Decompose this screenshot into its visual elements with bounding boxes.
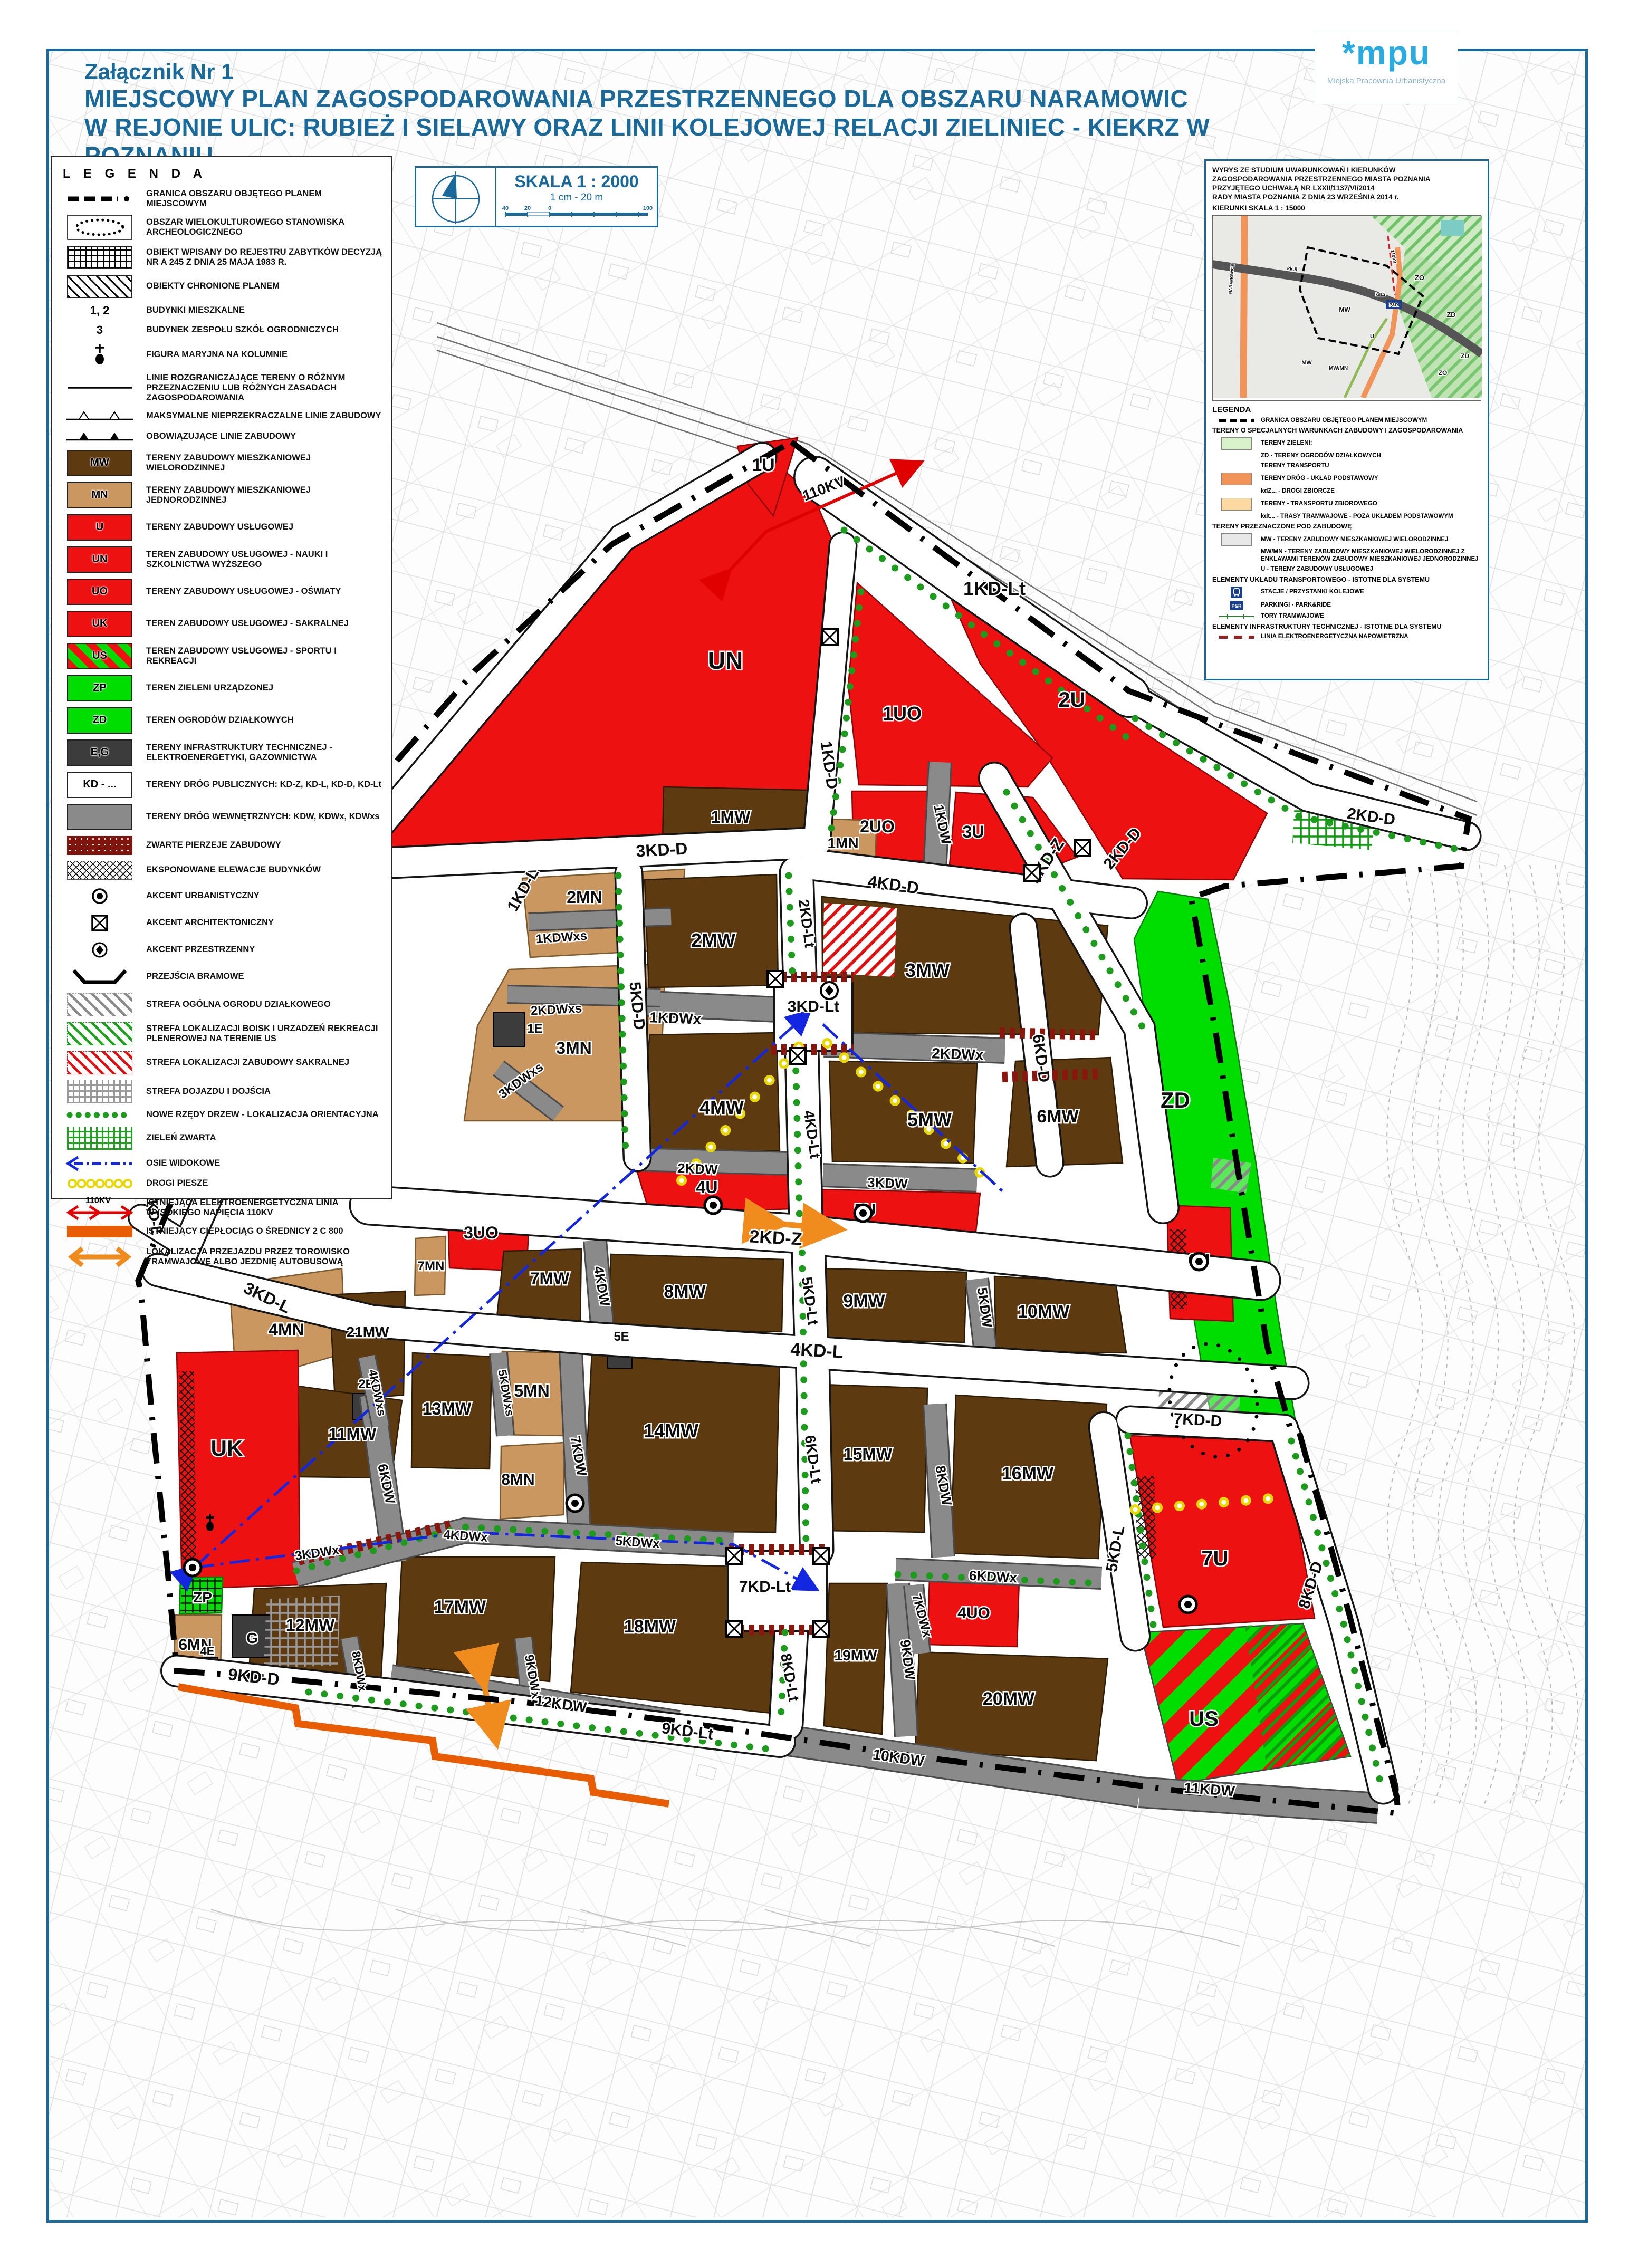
legend-swatch-kdw	[67, 804, 132, 830]
legend-panel: L E G E N D A GRANICA OBSZARU OBJĘTEGO P…	[51, 156, 392, 1199]
svg-text:100: 100	[643, 206, 653, 212]
legend-item-label: AKCENT PRZESTRZENNY	[137, 945, 255, 955]
inset-title-2: ZAGOSPODAROWANIA PRZESTRZENNEGO MIASTA P…	[1212, 175, 1481, 184]
legend-item-label: NOWE RZĘDY DRZEW - LOKALIZACJA ORIENTACY…	[137, 1110, 379, 1120]
map-label-14MW: 14MW	[644, 1420, 698, 1441]
legend-swatch-u: UO	[67, 579, 132, 605]
legend-swatch-u: UK	[67, 611, 132, 637]
legend-item-label: OBSZAR WIELOKULTUROWEGO STANOWISKA ARCHE…	[137, 217, 384, 237]
legend-swatch-zp: ZD	[67, 707, 132, 734]
map-label-1KD-Lt: 1KD-Lt	[963, 578, 1026, 599]
inset-label-U: U	[1370, 333, 1374, 340]
map-label-1MN: 1MN	[827, 835, 858, 851]
inset-legend-label: TERENY ZIELENI:	[1261, 440, 1312, 447]
inset-legend-title: LEGENDA	[1212, 405, 1481, 414]
inset-label-ZO: ZO	[1415, 274, 1424, 282]
legend-item-32: NOWE RZĘDY DRZEW - LOKALIZACJA ORIENTACY…	[63, 1109, 384, 1121]
title-block: Załącznik Nr 1 MIEJSCOWY PLAN ZAGOSPODAR…	[84, 59, 1245, 170]
svg-text:110KV: 110KV	[85, 1196, 111, 1205]
legend-item-label: TEREN ZIELENI URZĄDZONEJ	[137, 683, 273, 693]
legend-item-label: OBIEKTY CHRONIONE PLANEM	[137, 281, 280, 291]
inset-legend-label: TORY TRAMWAJOWE	[1261, 613, 1324, 620]
legend-item-26: AKCENT PRZESTRZENNY	[63, 939, 384, 960]
legend-swatch-kd: KD - ...	[67, 772, 132, 798]
mpu-logo-mark: *mpu	[1315, 30, 1458, 75]
inset-label-P&R: P&R	[1390, 303, 1398, 307]
map-label-2KDWx: 2KDWx	[932, 1045, 984, 1063]
inset-legend-label: MW/MN - TERENY ZABUDOWY MIESZKANIOWEJ WI…	[1261, 549, 1481, 563]
legend-item-31: STREFA DOJAZDU I DOJŚCIA	[63, 1080, 384, 1103]
inset-legend-label: TERENY - TRANSPORTU ZBIOROWEGO	[1261, 501, 1377, 508]
inset-label-kdt.2: kdt.2	[1376, 292, 1386, 297]
map-label-8MN: 8MN	[501, 1471, 534, 1488]
map-label-4E: 4E	[200, 1645, 215, 1658]
svg-text:P&R: P&R	[1231, 603, 1242, 609]
map-label-4UO: 4UO	[957, 1604, 990, 1622]
legend-item-label: PRZEJŚCIA BRAMOWE	[137, 972, 244, 982]
map-label-5E: 5E	[614, 1330, 629, 1344]
legend-item-10: MWTERENY ZABUDOWY MIESZKANIOWEJ WIELOROD…	[63, 450, 384, 476]
legend-item-label: DROGI PIESZE	[137, 1178, 208, 1188]
map-label-6MW: 6MW	[1037, 1107, 1079, 1127]
map-label-UK: UK	[211, 1436, 243, 1460]
svg-text:40: 40	[502, 206, 509, 212]
map-label-4U: 4U	[696, 1178, 718, 1197]
map-label-ZP: ZP	[193, 1589, 212, 1606]
legend-item-label: TERENY ZABUDOWY MIESZKANIOWEJ WIELORODZI…	[137, 453, 384, 473]
inset-legend-label: U - TERENY ZABUDOWY USŁUGOWEJ	[1261, 566, 1373, 573]
legend-item-2: OBIEKT WPISANY DO REJESTRU ZABYTKÓW DECY…	[63, 246, 384, 269]
legend-item-38: LOKALIZACJA PRZEJAZDU PRZEZ TOROWISKO TR…	[63, 1243, 384, 1271]
map-label-18MW: 18MW	[624, 1617, 676, 1637]
inset-legend-item-17: ELEMENTY INFRASTRUKTURY TECHNICZNEJ - IS…	[1212, 623, 1481, 631]
inset-label-MW: MW	[1339, 306, 1350, 313]
inset-legend-label: STACJE / PRZYSTANKI KOLEJOWE	[1261, 589, 1364, 596]
legend-swatch-hred	[67, 1051, 132, 1074]
map-label-1KDWx: 1KDWx	[649, 1009, 702, 1027]
legend-item-4: 1, 2BUDYNKI MIESZKALNE	[63, 304, 384, 318]
map-label-15MW: 15MW	[844, 1445, 893, 1464]
inset-label-ZO: ZO	[1439, 369, 1448, 377]
map-label-2U: 2U	[1058, 688, 1085, 712]
map-label-16MW: 16MW	[1002, 1464, 1054, 1484]
legend-item-16: USTEREN ZABUDOWY USŁUGOWEJ - SPORTU I RE…	[63, 643, 384, 669]
inset-legend-item-0: GRANICA OBSZARU OBJĘTEGO PLANEM MIEJSCOW…	[1212, 417, 1481, 425]
inset-legend: LEGENDA GRANICA OBSZARU OBJĘTEGO PLANEM …	[1212, 405, 1481, 641]
map-label-2KD-Z: 2KD-Z	[749, 1226, 803, 1249]
inset-legend-item-15: P&RPARKINGI - PARK&RIDE	[1212, 601, 1481, 610]
inset-legend-item-5: TERENY DRÓG - UKŁAD PODSTAWOWY	[1212, 473, 1481, 485]
legend-symbol-number: 1, 2	[90, 304, 110, 318]
legend-item-1: OBSZAR WIELOKULTUROWEGO STANOWISKA ARCHE…	[63, 215, 384, 240]
map-label-12MW: 12MW	[286, 1616, 335, 1635]
legend-item-label: TERENY DRÓG WEWNĘTRZNYCH: KDW, KDWx, KDW…	[137, 812, 379, 822]
legend-item-22: ZWARTE PIERZEJE ZABUDOWY	[63, 836, 384, 855]
legend-item-0: GRANICA OBSZARU OBJĘTEGO PLANEM MIEJSCOW…	[63, 189, 384, 209]
legend-symbol-number: 3	[97, 323, 103, 337]
legend-item-11: MNTERENY ZABUDOWY MIESZKANIOWEJ JEDNOROD…	[63, 482, 384, 508]
inset-legend-label: TERENY TRANSPORTU	[1261, 463, 1329, 470]
map-label-19MW: 19MW	[835, 1647, 877, 1664]
map-label-13MW: 13MW	[423, 1399, 472, 1418]
inset-legend-item-10: MW - TERENY ZABUDOWY MIESZKANIOWEJ WIELO…	[1212, 533, 1481, 546]
legend-item-label: GRANICA OBSZARU OBJĘTEGO PLANEM MIEJSCOW…	[137, 189, 384, 209]
legend-item-20: KD - ...TERENY DRÓG PUBLICZNYCH: KD-Z, K…	[63, 772, 384, 798]
legend-item-label: ISTNIEJĄCA ELEKTROENERGETYCZNA LINIA WYS…	[137, 1198, 384, 1218]
inset-legend-item-12: U - TERENY ZABUDOWY USŁUGOWEJ	[1212, 566, 1481, 573]
map-label-3MN: 3MN	[556, 1039, 592, 1058]
legend-item-35: DROGI PIESZE	[63, 1177, 384, 1190]
inset-legend-item-13: ELEMENTY UKŁADU TRANSPORTOWEGO - ISTOTNE…	[1212, 576, 1481, 584]
legend-item-label: TERENY ZABUDOWY USŁUGOWEJ - OŚWIATY	[137, 587, 341, 597]
legend-item-21: TERENY DRÓG WEWNĘTRZNYCH: KDW, KDWx, KDW…	[63, 804, 384, 830]
map-label-7U: 7U	[1201, 1547, 1228, 1570]
legend-item-5: 3BUDYNEK ZESPOŁU SZKÓŁ OGRODNICZYCH	[63, 323, 384, 337]
map-label-3KD-D: 3KD-D	[636, 839, 688, 860]
inset-legend-label: GRANICA OBSZARU OBJĘTEGO PLANEM MIEJSCOW…	[1261, 417, 1427, 425]
map-label-7MN: 7MN	[418, 1259, 445, 1273]
map-label-2KDWxs: 2KDWxs	[530, 1001, 582, 1018]
inset-legend-label: TERENY O SPECJALNYCH WARUNKACH ZABUDOWY …	[1212, 427, 1463, 435]
zone-1E	[493, 1013, 525, 1047]
inset-legend-label: TERENY DRÓG - UKŁAD PODSTAWOWY	[1261, 475, 1378, 483]
legend-item-label: LOKALIZACJA PRZEJAZDU PRZEZ TOROWISKO TR…	[137, 1247, 384, 1267]
inset-label-MW/MN: MW/MN	[1329, 366, 1348, 371]
map-label-4KD-L: 4KD-L	[790, 1339, 844, 1362]
inset-legend-label: ELEMENTY INFRASTRUKTURY TECHNICZNEJ - IS…	[1212, 623, 1442, 631]
legend-item-label: EKSPONOWANE ELEWACJE BUDYNKÓW	[137, 865, 321, 875]
map-label-10MW: 10MW	[1018, 1302, 1070, 1322]
legend-item-14: UOTERENY ZABUDOWY USŁUGOWEJ - OŚWIATY	[63, 579, 384, 605]
legend-item-label: AKCENT URBANISTYCZNY	[137, 891, 260, 901]
urban-accent-dot	[571, 1500, 579, 1507]
map-label-ZD: ZD	[1161, 1088, 1190, 1112]
legend-item-29: STREFA LOKALIZACJI BOISK I URZADZEŃ REKR…	[63, 1022, 384, 1045]
legend-swatch-us: US	[67, 643, 132, 669]
plan-title-line1: MIEJSCOWY PLAN ZAGOSPODAROWANIA PRZESTRZ…	[84, 84, 1245, 113]
map-label-20MW: 20MW	[983, 1689, 1035, 1709]
legend-items: GRANICA OBSZARU OBJĘTEGO PLANEM MIEJSCOW…	[63, 189, 384, 1271]
compass-rose-icon	[416, 168, 496, 226]
legend-item-label: ZWARTE PIERZEJE ZABUDOWY	[137, 840, 281, 850]
map-label-1U: 1U	[752, 455, 774, 475]
legend-item-34: OSIE WIDOKOWE	[63, 1156, 384, 1171]
inset-road-orange-1	[1243, 216, 1244, 398]
scale-subtitle: 1 cm - 20 m	[496, 192, 657, 204]
legend-swatch-hgreen	[67, 1022, 132, 1045]
inset-legend-item-8: kdt... - TRASY TRAMWAJOWE - POZA UKŁADEM…	[1212, 513, 1481, 521]
legend-item-label: OBOWIĄZUJĄCE LINIE ZABUDOWY	[137, 431, 296, 441]
map-label-2MN: 2MN	[567, 888, 602, 907]
legend-item-label: OBIEKT WPISANY DO REJESTRU ZABYTKÓW DECY…	[137, 247, 384, 267]
legend-item-3: OBIEKTY CHRONIONE PLANEM	[63, 275, 384, 298]
scale-title: SKALA 1 : 2000	[496, 172, 657, 191]
legend-item-label: AKCENT ARCHITEKTONICZNY	[137, 918, 274, 928]
inset-legend-label: kdt... - TRASY TRAMWAJOWE - POZA UKŁADEM…	[1261, 513, 1453, 521]
legend-item-label: TEREN ZABUDOWY USŁUGOWEJ - SAKRALNEJ	[137, 619, 349, 629]
legend-swatch-u: U	[67, 514, 132, 541]
legend-swatch-heat	[67, 1226, 132, 1237]
legend-swatch-hgray	[67, 993, 132, 1016]
map-label-3KDW: 3KDW	[867, 1175, 908, 1192]
overlay-pcross	[179, 1371, 196, 1560]
map-label-3MW: 3MW	[905, 959, 950, 981]
map-label-11MW: 11MW	[329, 1425, 377, 1444]
legend-item-8: MAKSYMALNE NIEPRZEKRACZALNE LINIE ZABUDO…	[63, 409, 384, 424]
legend-swatch-gridhatch	[67, 246, 132, 269]
legend-item-12: UTERENY ZABUDOWY USŁUGOWEJ	[63, 514, 384, 541]
map-label-1UO: 1UO	[883, 703, 922, 724]
legend-item-37: ISTNIEJĄCY CIEPŁOCIĄG O ŚREDNICY 2 C 800	[63, 1226, 384, 1237]
legend-item-label: STREFA OGÓLNA OGRODU DZIAŁKOWEGO	[137, 1000, 331, 1010]
map-label-4MW: 4MW	[699, 1097, 744, 1118]
inset-legend-label: MW - TERENY ZABUDOWY MIESZKANIOWEJ WIELO…	[1261, 536, 1448, 544]
inset-legend-label: PARKINGI - PARK&RIDE	[1261, 602, 1331, 609]
legend-item-36: 110KVISTNIEJĄCA ELEKTROENERGETYCZNA LINI…	[63, 1196, 384, 1220]
inset-legend-item-3: ZD - TERENY OGRODÓW DZIAŁKOWYCH	[1212, 453, 1481, 460]
legend-item-label: BUDYNEK ZESPOŁU SZKÓŁ OGRODNICZYCH	[137, 325, 339, 335]
legend-item-label: TERENY ZABUDOWY USŁUGOWEJ	[137, 522, 293, 532]
legend-item-23: EKSPONOWANE ELEWACJE BUDYNKÓW	[63, 861, 384, 880]
attachment-label: Załącznik Nr 1	[84, 59, 1245, 84]
legend-swatch-eg: E,G	[67, 739, 132, 766]
legend-item-label: FIGURA MARYJNA NA KOLUMNIE	[137, 350, 288, 360]
map-label-UN: UN	[708, 647, 743, 674]
inset-title-3: PRZYJĘTEGO UCHWAŁĄ NR LXXII/1137/VI/2014	[1212, 184, 1481, 193]
map-label-2UO: 2UO	[860, 817, 895, 836]
legend-item-label: ZIELEŃ ZWARTA	[137, 1133, 216, 1143]
map-label-4MN: 4MN	[269, 1320, 304, 1339]
overlay-phgray	[1211, 1158, 1251, 1193]
legend-swatch-ggreen	[67, 1127, 132, 1150]
legend-item-label: TEREN ZABUDOWY USŁUGOWEJ - NAUKI I SZKOL…	[137, 550, 384, 570]
map-label-1E: 1E	[527, 1022, 542, 1036]
legend-swatch-zwarte	[67, 836, 132, 855]
legend-swatch-diaghatch	[67, 275, 132, 298]
urban-accent-dot	[1184, 1601, 1192, 1608]
legend-item-15: UKTEREN ZABUDOWY USŁUGOWEJ - SAKRALNEJ	[63, 611, 384, 637]
urban-accent-dot	[859, 1209, 867, 1217]
legend-item-18: ZDTEREN OGRODÓW DZIAŁKOWYCH	[63, 707, 384, 734]
legend-item-7: LINIE ROZGRANICZAJĄCE TERENY O RÓŻNYM PR…	[63, 373, 384, 403]
map-label-6KDWx: 6KDWx	[969, 1568, 1018, 1586]
inset-legend-item-7: TERENY - TRANSPORTU ZBIOROWEGO	[1212, 498, 1481, 511]
inset-kierunki: KIERUNKI SKALA 1 : 15000	[1212, 204, 1481, 212]
legend-item-28: STREFA OGÓLNA OGRODU DZIAŁKOWEGO	[63, 993, 384, 1016]
scale-box: SKALA 1 : 2000 1 cm - 20 m 40 20 0 100	[415, 166, 658, 227]
inset-legend-item-4: TERENY TRANSPORTU	[1212, 463, 1481, 470]
svg-text:20: 20	[524, 206, 531, 212]
inset-water	[1441, 220, 1464, 236]
inset-map: kk.8110kVZOkdt.2P&RZDMWUMW/MNZOZDMWNARAM…	[1212, 215, 1481, 401]
map-label-9MW: 9MW	[843, 1291, 885, 1311]
inset-legend-item-11: MW/MN - TERENY ZABUDOWY MIESZKANIOWEJ WI…	[1212, 549, 1481, 563]
inset-legend-item-9: TERENY PRZEZNACZONE POD ZABUDOWĘ	[1212, 523, 1481, 531]
inset-label-MW: MW	[1301, 360, 1312, 366]
overlay-phred	[823, 903, 897, 977]
legend-item-9: OBOWIĄZUJĄCE LINIE ZABUDOWY	[63, 429, 384, 444]
inset-legend-label: TERENY PRZEZNACZONE POD ZABUDOWĘ	[1212, 523, 1352, 531]
overlay-pcross	[1135, 1476, 1156, 1560]
map-label-7KD-Lt: 7KD-Lt	[739, 1578, 791, 1596]
inset-legend-item-1: TERENY O SPECJALNYCH WARUNKACH ZABUDOWY …	[1212, 427, 1481, 435]
legend-item-label: ISTNIEJĄCY CIEPŁOCIĄG O ŚREDNICY 2 C 800	[137, 1226, 343, 1236]
legend-item-label: TERENY INFRASTRUKTURY TECHNICZNEJ - ELEK…	[137, 743, 384, 763]
urban-accent-dot	[1195, 1258, 1203, 1265]
inset-legend-item-6: kdZ... - DROGI ZBIORCZE	[1212, 488, 1481, 495]
inset-legend-item-2: TERENY ZIELENI:	[1212, 437, 1481, 450]
map-label-7MW: 7MW	[530, 1269, 570, 1288]
svg-text:0: 0	[548, 206, 551, 212]
legend-item-25: AKCENT ARCHITEKTONICZNY	[63, 912, 384, 934]
map-label-1MW: 1MW	[711, 808, 751, 827]
inset-legend-label: kdZ... - DROGI ZBIORCZE	[1261, 488, 1335, 495]
legend-item-6: FIGURA MARYJNA NA KOLUMNIE	[63, 343, 384, 367]
scale-bar: 40 20 0 100	[500, 206, 653, 218]
legend-item-label: MAKSYMALNE NIEPRZEKRACZALNE LINIE ZABUDO…	[137, 411, 381, 421]
legend-swatch-mw: MW	[67, 450, 132, 476]
legend-item-24: AKCENT URBANISTYCZNY	[63, 886, 384, 907]
map-label-2MW: 2MW	[691, 929, 735, 951]
map-label-5MN: 5MN	[514, 1381, 550, 1400]
urban-accent-dot	[710, 1202, 717, 1209]
legend-swatch-zp: ZP	[67, 675, 132, 701]
legend-item-label: TERENY DRÓG PUBLICZNYCH: KD-Z, KD-L, KD-…	[137, 780, 381, 790]
legend-swatch-mn: MN	[67, 482, 132, 508]
legend-item-27: PRZEJŚCIA BRAMOWE	[63, 966, 384, 987]
map-label-17MW: 17MW	[434, 1597, 486, 1617]
inset-legend-label: ELEMENTY UKŁADU TRANSPORTOWEGO - ISTOTNE…	[1212, 576, 1430, 584]
legend-item-label: TEREN OGRODÓW DZIAŁKOWYCH	[137, 715, 294, 725]
inset-title-4: RADY MIASTA POZNANIA Z DNIA 23 WRZEŚNIA …	[1212, 193, 1481, 202]
legend-item-label: STREFA LOKALIZACJI ZABUDOWY SAKRALNEJ	[137, 1058, 349, 1068]
mpu-logo: *mpu Miejska Pracownia Urbanistyczna	[1315, 30, 1458, 104]
map-label-2KDW: 2KDW	[677, 1160, 718, 1178]
map-label-3UO: 3UO	[464, 1223, 499, 1242]
scale-info: SKALA 1 : 2000 1 cm - 20 m 40 20 0 100	[496, 168, 657, 226]
legend-item-label: OSIE WIDOKOWE	[137, 1158, 220, 1168]
legend-swatch-crosshatch	[67, 861, 132, 880]
legend-item-label: LINIE ROZGRANICZAJĄCE TERENY O RÓŻNYM PR…	[137, 373, 384, 403]
legend-title: L E G E N D A	[63, 167, 384, 181]
legend-item-label: STREFA LOKALIZACJI BOISK I URZADZEŃ REKR…	[137, 1024, 384, 1044]
inset-legend-label: ZD - TERENY OGRODÓW DZIAŁKOWYCH	[1261, 453, 1381, 460]
inset-legend-label: LINIA ELEKTROENERGETYCZNA NAPOWIETRZNA	[1261, 633, 1408, 641]
mpu-logo-subtitle: Miejska Pracownia Urbanistyczna	[1315, 76, 1458, 85]
legend-item-label: BUDYNKI MIESZKALNE	[137, 305, 245, 315]
zone-14MW	[583, 1353, 780, 1532]
legend-item-19: E,GTERENY INFRASTRUKTURY TECHNICZNEJ - E…	[63, 739, 384, 766]
map-label-21MW: 21MW	[347, 1324, 389, 1340]
map-label-8MW: 8MW	[664, 1282, 706, 1302]
legend-swatch-ggray	[67, 1080, 132, 1103]
study-inset-panel: WYRYS ZE STUDIUM UWARUNKOWAŃ I KIERUNKÓW…	[1204, 159, 1489, 680]
map-label-5MW: 5MW	[907, 1109, 952, 1130]
map-label-3U: 3U	[963, 822, 984, 841]
legend-item-30: STREFA LOKALIZACJI ZABUDOWY SAKRALNEJ	[63, 1051, 384, 1074]
map-label-3KD-Lt: 3KD-Lt	[788, 998, 839, 1015]
map-label-US: US	[1189, 1707, 1219, 1731]
map-label-G: G	[246, 1630, 258, 1646]
legend-swatch-u: UN	[67, 546, 132, 573]
inset-legend-item-14: STACJE / PRZYSTANKI KOLEJOWE	[1212, 587, 1481, 598]
legend-item-33: ZIELEŃ ZWARTA	[63, 1127, 384, 1150]
legend-item-label: TERENY ZABUDOWY MIESZKANIOWEJ JEDNORODZI…	[137, 485, 384, 505]
inset-title-1: WYRYS ZE STUDIUM UWARUNKOWAŃ I KIERUNKÓW	[1212, 166, 1481, 175]
map-label-7KD-D: 7KD-D	[1173, 1410, 1222, 1430]
legend-item-17: ZPTEREN ZIELENI URZĄDZONEJ	[63, 675, 384, 701]
figura-maryjna-base	[206, 1522, 214, 1531]
inset-legend-item-16: TORY TRAMWAJOWE	[1212, 613, 1481, 620]
inset-label-ZD: ZD	[1461, 352, 1469, 360]
legend-item-13: UNTEREN ZABUDOWY USŁUGOWEJ - NAUKI I SZK…	[63, 546, 384, 573]
inset-label-ZD: ZD	[1446, 311, 1455, 319]
road-kdw	[529, 917, 671, 922]
urban-accent-dot	[189, 1564, 196, 1571]
legend-item-label: TEREN ZABUDOWY USŁUGOWEJ - SPORTU I REKR…	[137, 646, 384, 666]
legend-item-label: STREFA DOJAZDU I DOJŚCIA	[137, 1087, 271, 1097]
inset-legend-item-18: LINIA ELEKTROENERGETYCZNA NAPOWIETRZNA	[1212, 633, 1481, 641]
